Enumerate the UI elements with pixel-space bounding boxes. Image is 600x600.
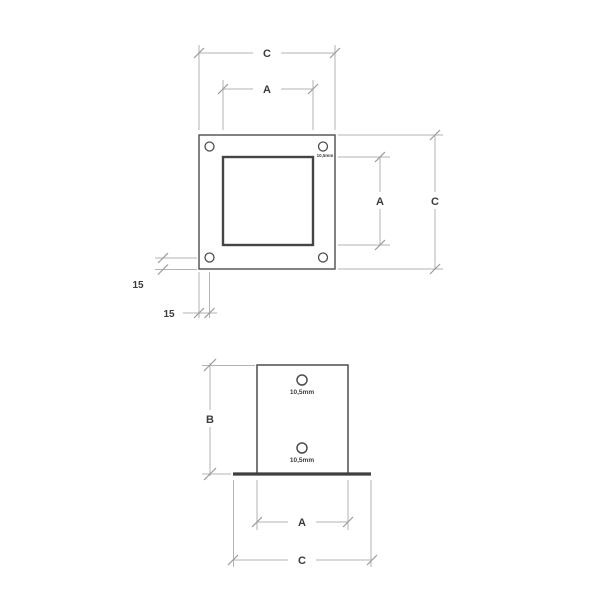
front-view-hole-top-diameter-label: 10,5mm bbox=[290, 389, 314, 396]
front-view-hole-top bbox=[297, 375, 307, 385]
front-view-dim-height: B bbox=[201, 359, 255, 480]
top-view-outer-width-label: C bbox=[263, 48, 271, 60]
front-view: 10,5mm 10,5mm B A bbox=[201, 359, 377, 568]
top-view-dim-inner-width: A bbox=[218, 80, 318, 130]
top-view-dim-inner-height: A bbox=[338, 152, 390, 250]
top-view-inner-width-label: A bbox=[263, 84, 271, 96]
front-view-dim-outer-width: C bbox=[228, 552, 377, 568]
top-view-outer-plate bbox=[199, 135, 335, 269]
top-view-dim-hole-offset-horizontal: 15 bbox=[163, 272, 217, 320]
front-view-dim-inner-width: A bbox=[252, 514, 353, 530]
top-view-hole-bottom-right bbox=[319, 253, 328, 262]
top-view-hole-offset-horizontal-label: 15 bbox=[163, 309, 175, 320]
top-view-dim-hole-offset-vertical: 15 bbox=[132, 253, 197, 291]
front-view-outer-width-label: C bbox=[298, 555, 306, 567]
top-view-outer-height-label: C bbox=[431, 196, 439, 208]
top-view-hole-bottom-left bbox=[205, 253, 214, 262]
top-view-hole-top-left bbox=[205, 142, 214, 151]
top-view: 10,5mm C A A bbox=[132, 45, 444, 320]
top-view-dim-outer-height: C bbox=[338, 130, 444, 274]
front-view-height-label: B bbox=[206, 414, 214, 426]
technical-drawing-canvas: 10,5mm C A A bbox=[0, 0, 600, 600]
top-view-hole-diameter-label: 10,5mm bbox=[317, 153, 334, 158]
top-view-inner-height-label: A bbox=[376, 196, 384, 208]
top-view-inner-tube bbox=[223, 157, 313, 245]
technical-drawing-page: 10,5mm C A A bbox=[0, 0, 600, 600]
front-view-hole-bottom-diameter-label: 10,5mm bbox=[290, 457, 314, 464]
front-view-hole-bottom bbox=[297, 443, 307, 453]
front-view-inner-width-label: A bbox=[298, 517, 306, 529]
top-view-hole-offset-vertical-label: 15 bbox=[132, 280, 144, 291]
top-view-hole-top-right bbox=[319, 142, 328, 151]
